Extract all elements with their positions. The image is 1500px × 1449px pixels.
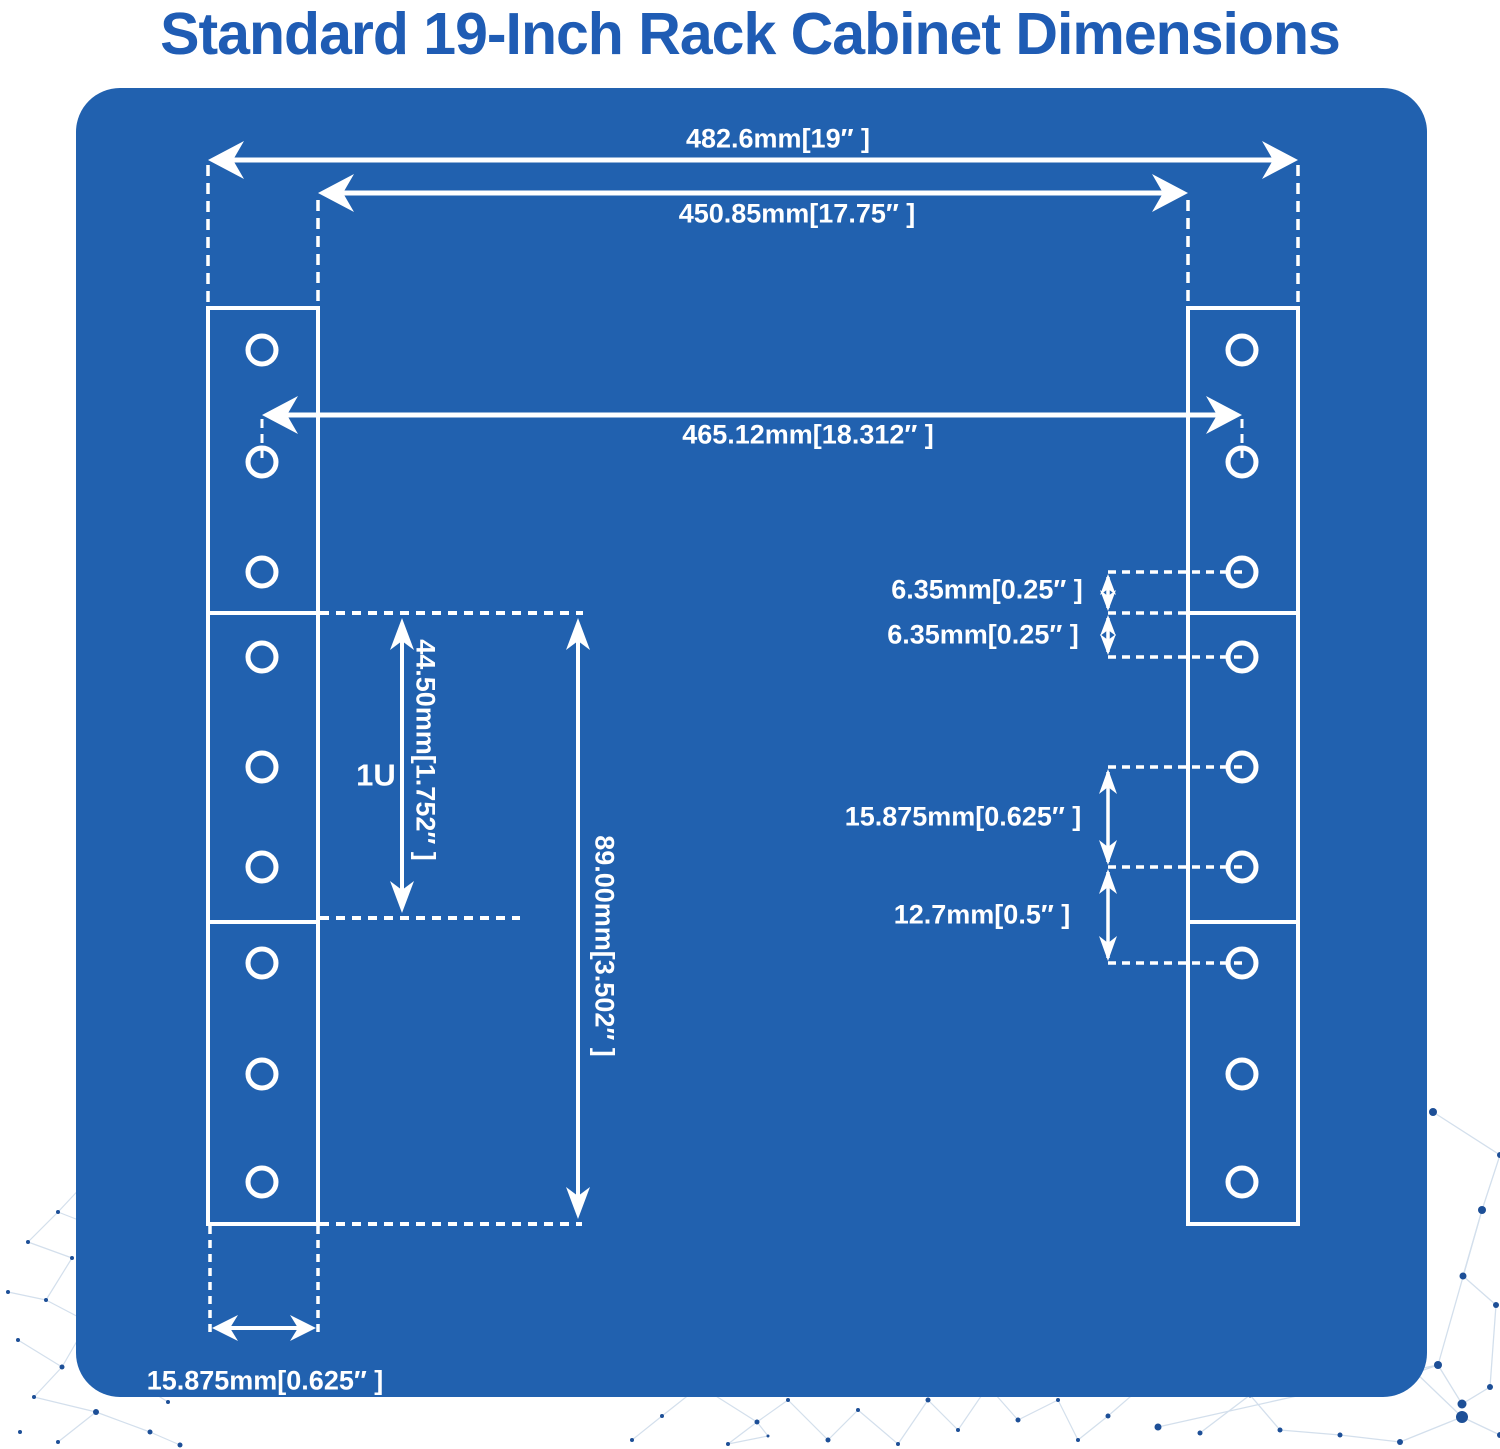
mounting-hole bbox=[1228, 1168, 1256, 1196]
mounting-hole bbox=[248, 1168, 276, 1196]
right-rail bbox=[1188, 308, 1298, 1224]
dim-label-hole-pitch-wide: 15.875mm[0.625″ ] bbox=[845, 804, 1082, 831]
mounting-hole bbox=[248, 1060, 276, 1088]
rack-diagram bbox=[76, 88, 1427, 1397]
dim-arrow-edge-offset-upper bbox=[1100, 574, 1116, 611]
dim-label-unit-symbol: 1U bbox=[356, 760, 396, 791]
dim-arrow-flange-width bbox=[212, 1315, 316, 1341]
mounting-hole bbox=[248, 336, 276, 364]
diagram-panel: 482.6mm[19″ ] 450.85mm[17.75″ ] 465.12mm… bbox=[76, 88, 1427, 1397]
dim-label-overall-width: 482.6mm[19″ ] bbox=[686, 126, 870, 153]
dim-label-hole-pitch-narrow: 12.7mm[0.5″ ] bbox=[894, 902, 1071, 929]
page-title: Standard 19-Inch Rack Cabinet Dimensions bbox=[160, 0, 1340, 68]
guide-dashed-lines bbox=[208, 165, 1298, 1336]
dim-label-edge-offset-upper: 6.35mm[0.25″ ] bbox=[891, 577, 1083, 604]
dim-label-edge-offset-lower: 6.35mm[0.25″ ] bbox=[887, 622, 1079, 649]
mounting-hole bbox=[248, 643, 276, 671]
mounting-hole bbox=[248, 853, 276, 881]
dim-arrow-hole-pitch-narrow bbox=[1099, 869, 1117, 961]
dim-label-flange-width: 15.875mm[0.625″ ] bbox=[147, 1368, 384, 1395]
dim-label-unit-height: 44.50mm[1.752″ ] bbox=[412, 639, 439, 861]
left-rail-holes bbox=[248, 336, 276, 1196]
dim-label-hole-span: 465.12mm[18.312″ ] bbox=[682, 422, 934, 449]
dim-label-inner-width: 450.85mm[17.75″ ] bbox=[679, 201, 916, 228]
dim-label-double-unit-height: 89.00mm[3.502″ ] bbox=[591, 835, 618, 1057]
mounting-hole bbox=[1228, 1060, 1256, 1088]
mounting-hole bbox=[248, 949, 276, 977]
dim-arrow-edge-offset-lower bbox=[1100, 615, 1116, 655]
dim-arrow-double-unit-height bbox=[566, 618, 590, 1219]
mounting-hole bbox=[1228, 336, 1256, 364]
mounting-hole bbox=[248, 558, 276, 586]
left-rail bbox=[208, 308, 318, 1224]
dim-arrow-hole-pitch-wide bbox=[1099, 769, 1117, 865]
mounting-hole bbox=[248, 753, 276, 781]
